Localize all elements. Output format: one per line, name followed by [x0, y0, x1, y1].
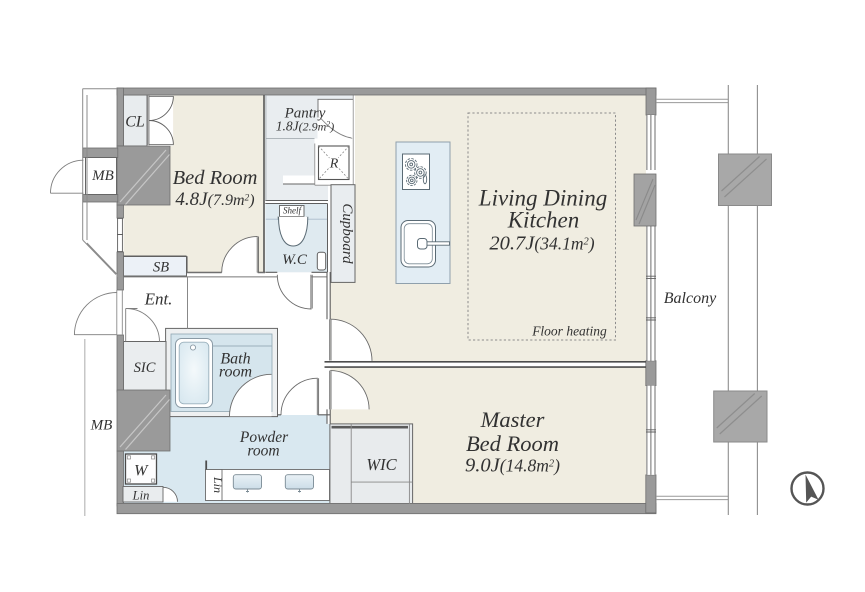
svg-text:Floor heating: Floor heating: [531, 324, 607, 339]
svg-text:W.C: W.C: [282, 252, 308, 268]
svg-text:WIC: WIC: [366, 455, 397, 474]
svg-text:1.8J(2.9m2): 1.8J(2.9m2): [276, 119, 335, 134]
svg-text:MB: MB: [91, 168, 114, 184]
svg-text:R: R: [329, 157, 339, 172]
svg-text:4.8J(7.9m2): 4.8J(7.9m2): [175, 189, 254, 210]
svg-text:Lin: Lin: [132, 488, 150, 502]
svg-text:MB: MB: [90, 418, 113, 434]
svg-text:Ent.: Ent.: [144, 290, 173, 309]
svg-text:20.7J(34.1m2): 20.7J(34.1m2): [489, 233, 594, 255]
svg-text:Bed Room: Bed Room: [173, 167, 258, 189]
svg-text:Lin: Lin: [211, 476, 225, 493]
svg-text:room: room: [247, 443, 279, 460]
svg-text:SIC: SIC: [134, 360, 156, 376]
svg-text:CL: CL: [125, 114, 145, 131]
svg-text:Master: Master: [480, 407, 545, 432]
svg-text:Bed Room: Bed Room: [466, 431, 559, 456]
svg-text:9.0J(14.8m2): 9.0J(14.8m2): [465, 455, 560, 477]
svg-text:Kitchen: Kitchen: [507, 208, 580, 233]
svg-text:SB: SB: [153, 259, 169, 275]
svg-text:room: room: [219, 364, 252, 381]
svg-text:Cupboard: Cupboard: [339, 203, 355, 264]
svg-text:Balcony: Balcony: [664, 290, 717, 307]
svg-text:W: W: [134, 463, 149, 480]
svg-text:Shelf: Shelf: [283, 205, 302, 215]
